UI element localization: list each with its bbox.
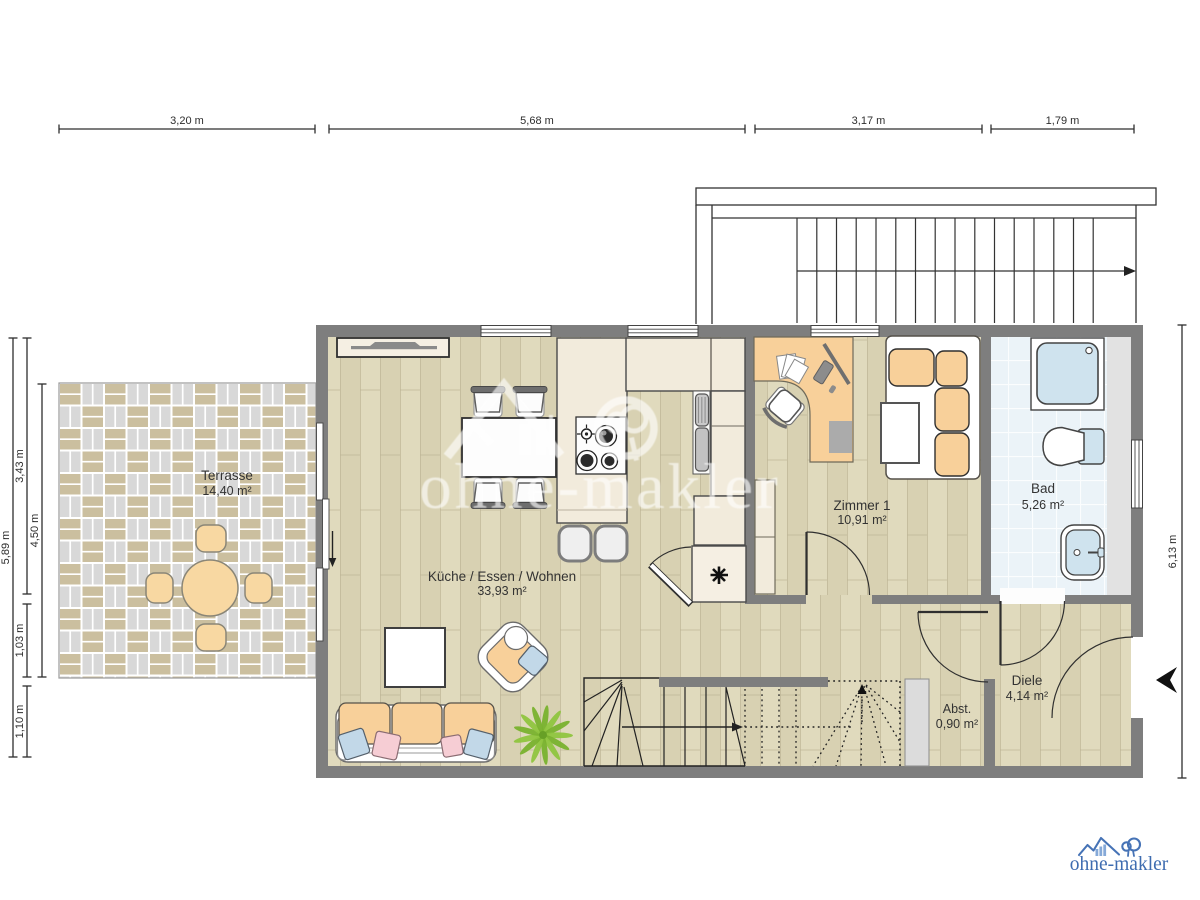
svg-text:Küche / Essen / Wohnen: Küche / Essen / Wohnen bbox=[428, 569, 576, 584]
svg-text:Diele: Diele bbox=[1012, 673, 1043, 688]
svg-text:Bad: Bad bbox=[1031, 481, 1055, 496]
svg-text:4,50 m: 4,50 m bbox=[29, 514, 41, 548]
svg-text:1,03 m: 1,03 m bbox=[14, 624, 26, 658]
svg-text:0,90 m²: 0,90 m² bbox=[936, 717, 978, 731]
svg-text:5,68 m: 5,68 m bbox=[520, 115, 554, 127]
svg-text:14,40 m²: 14,40 m² bbox=[202, 484, 251, 498]
svg-text:1,79 m: 1,79 m bbox=[1046, 115, 1080, 127]
svg-text:33,93 m²: 33,93 m² bbox=[477, 584, 526, 598]
svg-text:ohne-makler: ohne-makler bbox=[419, 451, 780, 523]
svg-text:3,20 m: 3,20 m bbox=[170, 115, 204, 127]
svg-text:Abst.: Abst. bbox=[943, 702, 972, 716]
svg-text:6,13 m: 6,13 m bbox=[1167, 535, 1179, 569]
svg-text:Terrasse: Terrasse bbox=[201, 468, 253, 483]
svg-text:1,10 m: 1,10 m bbox=[14, 705, 26, 739]
svg-text:5,26 m²: 5,26 m² bbox=[1022, 498, 1064, 512]
svg-text:4,14 m²: 4,14 m² bbox=[1006, 689, 1048, 703]
svg-text:10,91 m²: 10,91 m² bbox=[837, 513, 886, 527]
svg-text:Zimmer 1: Zimmer 1 bbox=[834, 498, 891, 513]
svg-text:5,89 m: 5,89 m bbox=[0, 531, 12, 565]
svg-text:ohne-makler: ohne-makler bbox=[1070, 854, 1169, 875]
svg-text:3,43 m: 3,43 m bbox=[14, 449, 26, 483]
svg-text:3,17 m: 3,17 m bbox=[852, 115, 886, 127]
